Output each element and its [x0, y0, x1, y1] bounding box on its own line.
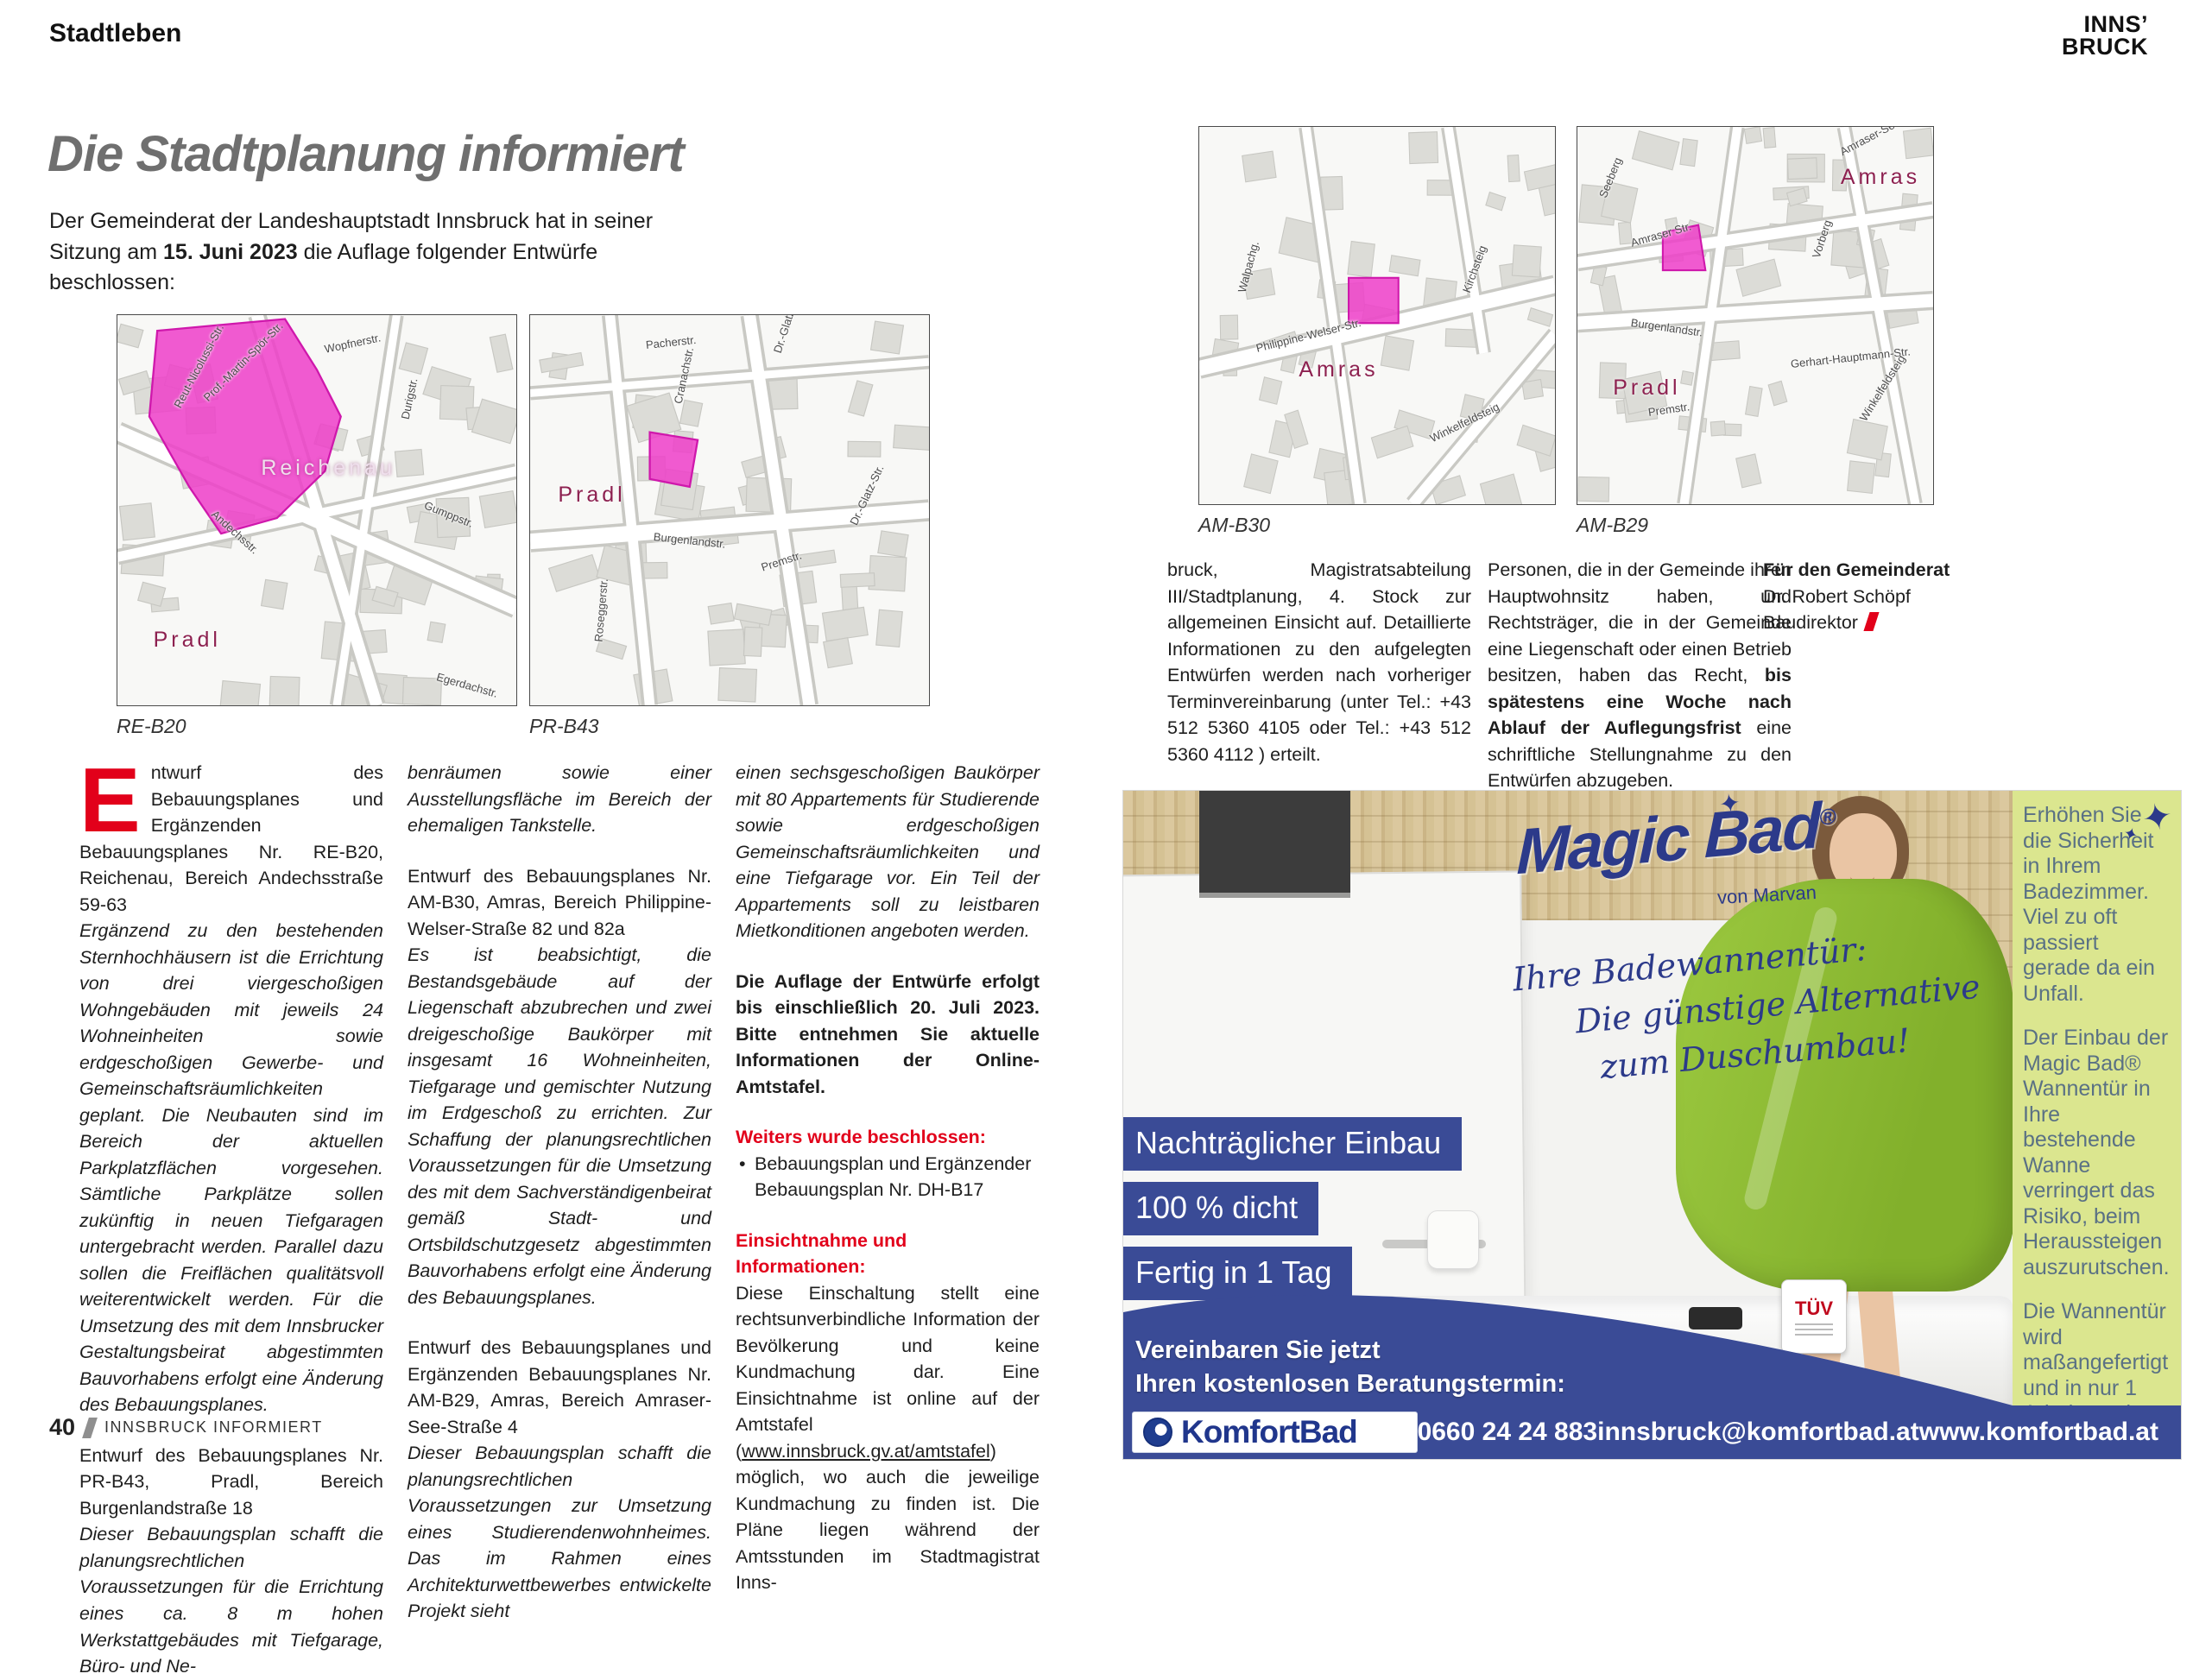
paragraph: Weiters wurde beschlossen: [736, 1124, 1040, 1151]
map-am-b29: AmrasPradlSeebergAmraser Str.Amraser-See… [1577, 126, 1934, 505]
paragraph: Dieser Bebauungsplan schafft die planung… [408, 1440, 711, 1625]
district-label: Reichenau [261, 456, 395, 481]
paragraph: Entwurf des Bebauungsplanes und Ergänzen… [79, 760, 383, 918]
street-label: Amraser-See-Str. [1837, 126, 1920, 158]
ad-cta-line1: Vereinbaren Sie jetzt [1135, 1336, 1381, 1365]
map-caption: AM-B29 [1577, 514, 1934, 537]
map-figure-am-b30: AmrasWalpachg.Philippine-Welser-Str.Kirc… [1198, 126, 1556, 537]
ad-phone: 0660 24 24 883 [1418, 1418, 1598, 1447]
paragraph: Diese Einschaltung stellt eine rechtsunv… [736, 1280, 1040, 1596]
map-labels: PradlPacherstr.Dr.-Glatz-Str.Cranachstr.… [530, 315, 929, 705]
paragraph: Dr. Robert Schöpf [1763, 584, 2048, 610]
komfortbad-logo-icon [1143, 1418, 1172, 1447]
signature-block: Für den GemeinderatDr. Robert SchöpfBaud… [1763, 557, 2048, 636]
map-figure-am-b29: AmrasPradlSeebergAmraser Str.Amraser-See… [1577, 126, 1934, 537]
magazine-name: INNSBRUCK INFORMIERT [104, 1418, 323, 1437]
paragraph: Entwurf des Bebauungsplanes Nr. AM-B30, … [408, 863, 711, 943]
page-number: 40 [49, 1414, 75, 1441]
body-column-1: Entwurf des Bebauungsplanes und Ergänzen… [79, 760, 383, 1680]
paragraph: Baudirektor [1763, 609, 2048, 636]
inline-link: www.innsbruck.gv.at/amtstafel [742, 1441, 990, 1462]
paragraph: Personen, die in der Gemeinde ihren Haup… [1488, 557, 1792, 794]
street-label: Dr.-Glatz-Str. [847, 463, 886, 527]
street-label: Seeberg [1596, 155, 1624, 199]
district-label: Pradl [154, 628, 221, 653]
wall-cabinet [1199, 791, 1350, 898]
paragraph: Die Auflage der Entwürfe erfolgt bis ein… [736, 969, 1040, 1101]
ad-side-panel-text: Erhöhen Sie die Sicherheit in Ihrem Bade… [2023, 803, 2171, 1460]
komfortbad-advertisement: Magic Bad® ✦ von Marvan Ihre Badewannent… [1122, 790, 2182, 1460]
ad-email: innsbruck@komfortbad.at [1597, 1418, 1919, 1447]
street-label: Winkelfeldsteig [1428, 400, 1501, 445]
paragraph: einen sechsgeschoßigen Baukörper mit 80 … [736, 760, 1040, 944]
street-label: Cranachstr. [672, 346, 696, 405]
ad-contact-bar: KomfortBad 0660 24 24 883 innsbruck@komf… [1123, 1405, 2181, 1459]
street-label: Andechsstr. [209, 508, 262, 557]
street-label: Premstr. [760, 548, 804, 573]
map-caption: RE-B20 [117, 715, 517, 738]
paragraph: Entwurf des Bebauungsplanes Nr. PR-B43, … [79, 1443, 383, 1522]
page-footer: 40 INNSBRUCK INFORMIERT [49, 1414, 323, 1441]
ad-photo: Magic Bad® ✦ von Marvan Ihre Badewannent… [1123, 791, 2013, 1405]
map-labels: AmrasPradlSeebergAmraser Str.Amraser-See… [1577, 127, 1933, 504]
map-labels: ReichenauPradlReut-Nicolussi-Str.Wopfner… [117, 315, 516, 705]
paragraph: Entwurf des Bebauungsplanes und Ergänzen… [408, 1335, 711, 1440]
street-label: Winkelfeldsteig [1856, 352, 1907, 423]
map-labels: AmrasWalpachg.Philippine-Welser-Str.Kirc… [1199, 127, 1555, 504]
street-label: Kirchsteig [1460, 243, 1489, 294]
street-label: Durigstr. [398, 377, 420, 420]
ad-side-panel: ✦ ✦ Erhöhen Sie die Sicherheit in Ihrem … [2013, 791, 2181, 1405]
map-re-b20: ReichenauPradlReut-Nicolussi-Str.Wopfner… [117, 314, 517, 706]
body-column-4: bruck, Magistratsabteilung III/Stadtplan… [1167, 557, 1471, 767]
footer-slash-icon [82, 1418, 98, 1438]
map-caption: PR-B43 [529, 715, 930, 738]
district-label: Amras [1299, 357, 1378, 382]
registered-mark-icon: ® [1819, 803, 1835, 831]
street-label: Burgenlandstr. [1630, 316, 1703, 339]
logo-line-1: INNS’ [2062, 14, 2148, 36]
district-label: Pradl [558, 483, 625, 508]
street-label: Walpachg. [1236, 239, 1261, 294]
paragraph: Bebauungsplan und Ergänzender Bebauungsp… [736, 1151, 1040, 1203]
paragraph: benräumen sowie einer Ausstellungsfläche… [408, 760, 711, 839]
district-label: Pradl [1613, 376, 1680, 401]
ad-panel-paragraph: Der Einbau der Magic Bad® Wannentür in I… [2023, 1026, 2171, 1280]
ad-chip: Nachträglicher Einbau [1123, 1117, 1462, 1171]
street-label: Reut-Nicolussi-Str. [172, 322, 227, 410]
body-column-3: einen sechsgeschoßigen Baukörper mit 80 … [736, 760, 1040, 1596]
paragraph: Für den Gemeinderat [1763, 557, 2048, 584]
ad-website: www.komfortbad.at [1919, 1418, 2158, 1447]
magazine-spread: { "header": { "section_label": "Stadtleb… [0, 0, 2193, 1458]
article-intro: Der Gemeinderat der Landeshauptstadt Inn… [49, 206, 714, 299]
paragraph: Dieser Bebauungsplan schafft die planung… [79, 1521, 383, 1679]
district-label: Amras [1841, 165, 1920, 190]
street-label: Roseggerstr. [591, 578, 610, 642]
sparkle-icon: ✦ [1717, 790, 1743, 821]
map-figure-re-b20: ReichenauPradlReut-Nicolussi-Str.Wopfner… [117, 314, 517, 738]
ad-chip: 100 % dicht [1123, 1182, 1318, 1235]
map-caption: AM-B30 [1198, 514, 1556, 537]
body-column-5: Personen, die in der Gemeinde ihren Haup… [1488, 557, 1792, 794]
paragraph: Ergänzend zu den bestehenden Sternhochhä… [79, 918, 383, 1418]
komfortbad-logo: KomfortBad [1132, 1412, 1418, 1453]
paragraph: Einsichtnahme und Informationen: [736, 1228, 1040, 1280]
page-title: Die Stadtplanung informiert [47, 125, 684, 183]
street-label: Amraser Str. [1629, 219, 1693, 249]
map-am-b30: AmrasWalpachg.Philippine-Welser-Str.Kirc… [1198, 126, 1556, 505]
red-slash-icon [1863, 612, 1879, 631]
body-column-2: benräumen sowie einer Ausstellungsfläche… [408, 760, 711, 1625]
street-label: Burgenlandstr. [653, 530, 726, 551]
section-label: Stadtleben [49, 19, 181, 48]
map-figure-pr-b43: PradlPacherstr.Dr.-Glatz-Str.Cranachstr.… [529, 314, 930, 738]
street-label: Gumppstr. [422, 499, 475, 530]
ad-cta-line2: Ihren kostenlosen Beratungstermin: [1135, 1370, 1565, 1399]
drop-cap: E [79, 765, 141, 837]
paragraph: bruck, Magistratsabteilung III/Stadtplan… [1167, 557, 1471, 767]
street-label: Philippine-Welser-Str. [1254, 316, 1362, 355]
paragraph: Es ist beabsichtigt, die Bestandsgebäude… [408, 942, 711, 1311]
street-label: Egerdachstr. [435, 671, 499, 701]
street-label: Vorberg [1810, 218, 1834, 260]
street-label: Dr.-Glatz-Str. [771, 314, 803, 355]
komfortbad-logo-text: KomfortBad [1181, 1414, 1357, 1450]
ad-feature-chips: Nachträglicher Einbau100 % dichtFertig i… [1123, 1117, 1462, 1300]
map-pr-b43: PradlPacherstr.Dr.-Glatz-Str.Cranachstr.… [529, 314, 930, 706]
innsbruck-magazine-logo: INNS’ BRUCK [2062, 14, 2148, 58]
street-label: Wopfnerstr. [324, 331, 382, 355]
street-label: Premstr. [1647, 401, 1691, 420]
logo-line-2: BRUCK [2062, 36, 2148, 59]
